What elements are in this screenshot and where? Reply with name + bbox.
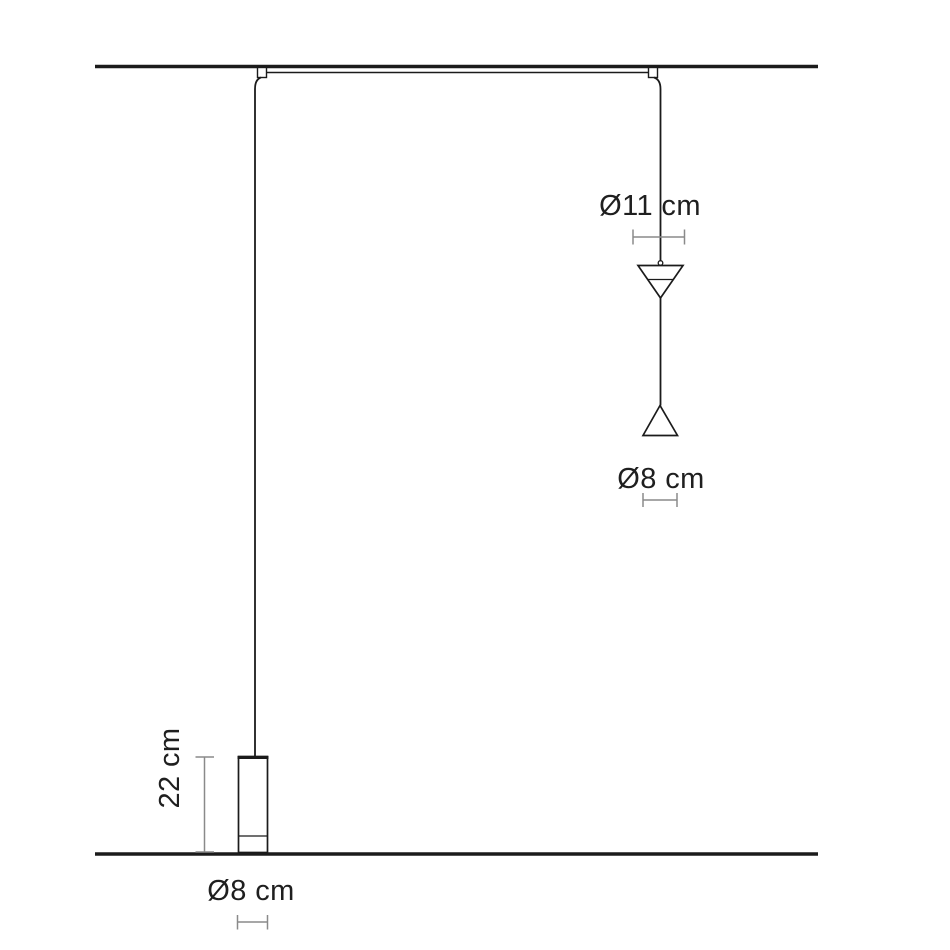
cable-left <box>255 78 261 757</box>
dim-line-cone-diameter <box>633 230 685 245</box>
cone-cable-joint <box>658 261 663 266</box>
dim-line-cylinder-height <box>196 757 215 852</box>
cylinder-height-label: 22 cm <box>153 708 187 828</box>
diagram-drawing <box>0 0 950 950</box>
cone-diameter-label: Ø11 cm <box>590 189 710 223</box>
cone-tip-diameter-label: Ø8 cm <box>601 462 721 496</box>
ceiling-mount-right <box>649 68 658 78</box>
cable-right-upper <box>654 78 661 262</box>
dim-line-cylinder-diameter <box>238 915 268 930</box>
ceiling-mount-left <box>258 68 267 78</box>
cone-shade <box>638 266 683 299</box>
lamp-dimension-diagram: Ø11 cm Ø8 cm 22 cm Ø8 cm <box>0 0 950 950</box>
cylinder-diameter-label: Ø8 cm <box>191 874 311 908</box>
cylinder-shade <box>239 757 268 853</box>
tip-cone-shade <box>643 406 678 436</box>
